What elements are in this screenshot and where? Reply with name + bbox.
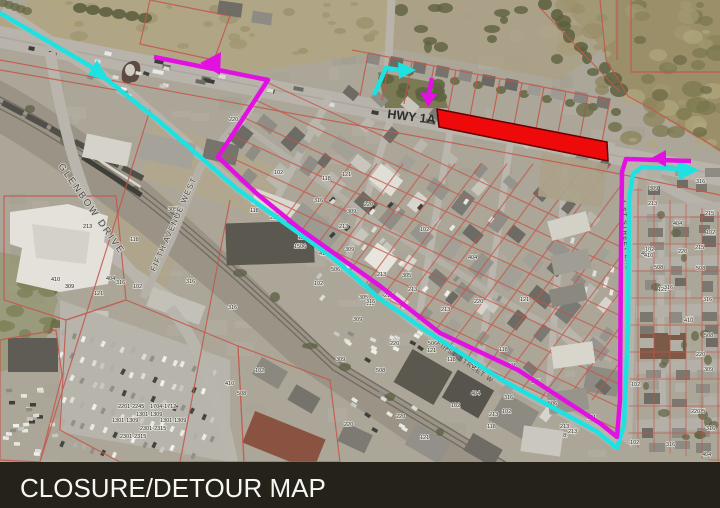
svg-text:102: 102: [631, 382, 640, 388]
svg-text:220: 220: [390, 341, 399, 347]
svg-text:CLOSURE/DETOUR MAP: CLOSURE/DETOUR MAP: [20, 473, 326, 503]
svg-text:102: 102: [420, 227, 429, 233]
svg-text:508: 508: [704, 333, 713, 339]
svg-text:309: 309: [65, 284, 74, 290]
svg-text:220: 220: [364, 202, 373, 208]
svg-text:220: 220: [344, 422, 353, 428]
svg-text:316: 316: [666, 442, 675, 448]
svg-text:121: 121: [94, 291, 103, 297]
svg-text:404: 404: [106, 276, 115, 282]
svg-text:213: 213: [568, 429, 577, 435]
svg-text:102: 102: [706, 230, 715, 236]
svg-text:410: 410: [225, 381, 234, 387]
svg-text:215: 215: [705, 211, 714, 217]
svg-text:404: 404: [468, 255, 477, 261]
svg-text:508: 508: [654, 265, 663, 271]
svg-text:309: 309: [336, 357, 345, 363]
svg-text:316: 316: [228, 305, 237, 311]
svg-text:404: 404: [702, 452, 711, 458]
svg-text:220: 220: [678, 249, 687, 255]
svg-text:213: 213: [441, 307, 450, 313]
svg-text:506: 506: [331, 267, 340, 273]
svg-text:1301-1309: 1301-1309: [112, 418, 138, 424]
svg-text:102: 102: [274, 170, 283, 176]
svg-text:404: 404: [673, 221, 682, 227]
svg-text:316: 316: [186, 279, 195, 285]
svg-text:118: 118: [250, 208, 259, 214]
svg-text:316: 316: [314, 198, 323, 204]
svg-text:121: 121: [342, 172, 351, 178]
svg-text:102: 102: [314, 281, 323, 287]
svg-text:118: 118: [130, 237, 139, 243]
svg-text:2301-2315: 2301-2315: [140, 426, 166, 432]
svg-text:309: 309: [704, 367, 713, 373]
svg-text:316: 316: [664, 285, 673, 291]
svg-text:410: 410: [644, 253, 653, 259]
svg-text:213: 213: [408, 287, 417, 293]
svg-text:508: 508: [696, 266, 705, 272]
svg-text:404: 404: [471, 391, 480, 397]
svg-text:316: 316: [696, 179, 705, 185]
svg-text:213: 213: [489, 412, 498, 418]
svg-text:213: 213: [648, 201, 657, 207]
svg-text:102: 102: [133, 284, 142, 290]
svg-text:508: 508: [237, 391, 246, 397]
svg-text:102: 102: [255, 368, 264, 374]
svg-text:316: 316: [703, 297, 712, 303]
svg-text:410: 410: [51, 277, 60, 283]
svg-text:118: 118: [322, 176, 331, 182]
svg-text:2201-2245: 2201-2245: [118, 404, 144, 410]
svg-text:102: 102: [630, 440, 639, 446]
svg-text:309: 309: [353, 317, 362, 323]
svg-text:1301-1309: 1301-1309: [160, 418, 186, 424]
svg-text:102: 102: [451, 403, 460, 409]
svg-text:213: 213: [377, 272, 386, 278]
svg-text:118: 118: [487, 424, 496, 430]
svg-text:508: 508: [376, 368, 385, 374]
svg-text:102: 102: [502, 409, 511, 415]
svg-text:506: 506: [297, 244, 306, 250]
svg-text:305: 305: [402, 273, 411, 279]
svg-text:1301-1309: 1301-1309: [136, 412, 162, 418]
svg-text:220: 220: [229, 117, 238, 123]
svg-text:316: 316: [116, 280, 125, 286]
svg-text:316: 316: [706, 426, 715, 432]
svg-text:121: 121: [520, 297, 529, 303]
svg-text:213: 213: [83, 224, 92, 230]
svg-text:220: 220: [396, 414, 405, 420]
svg-text:316: 316: [504, 395, 513, 401]
svg-text:2301-2315: 2301-2315: [120, 434, 146, 440]
svg-text:215: 215: [695, 245, 704, 251]
svg-text:220: 220: [691, 409, 700, 415]
svg-text:220: 220: [696, 352, 705, 358]
svg-text:118: 118: [499, 347, 508, 353]
svg-text:309: 309: [649, 186, 658, 192]
svg-text:316: 316: [366, 299, 375, 305]
svg-text:121: 121: [420, 435, 429, 441]
svg-text:220: 220: [474, 299, 483, 305]
svg-text:1704-1712: 1704-1712: [150, 404, 176, 410]
svg-text:309: 309: [347, 209, 356, 215]
svg-text:213: 213: [339, 224, 348, 230]
svg-text:410: 410: [684, 318, 693, 324]
svg-text:309: 309: [345, 247, 354, 253]
svg-text:121: 121: [427, 348, 436, 354]
